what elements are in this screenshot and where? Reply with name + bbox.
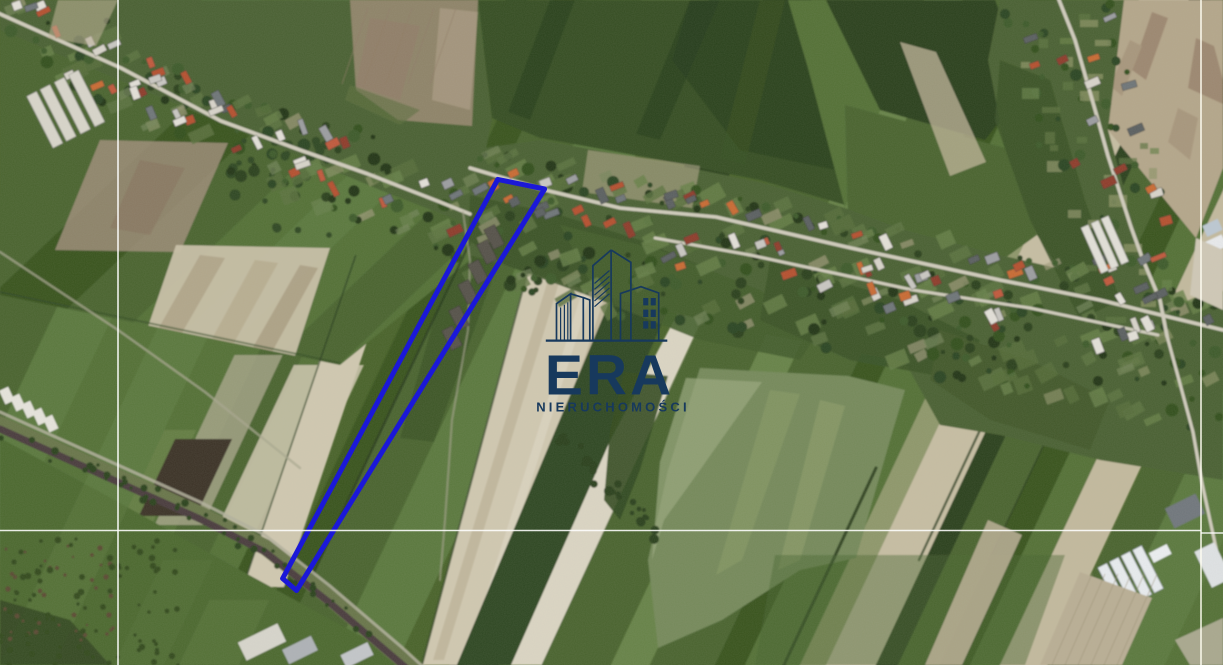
svg-text:NIERUCHOMOŚCI: NIERUCHOMOŚCI (536, 400, 690, 415)
svg-text:ERA: ERA (545, 344, 674, 408)
